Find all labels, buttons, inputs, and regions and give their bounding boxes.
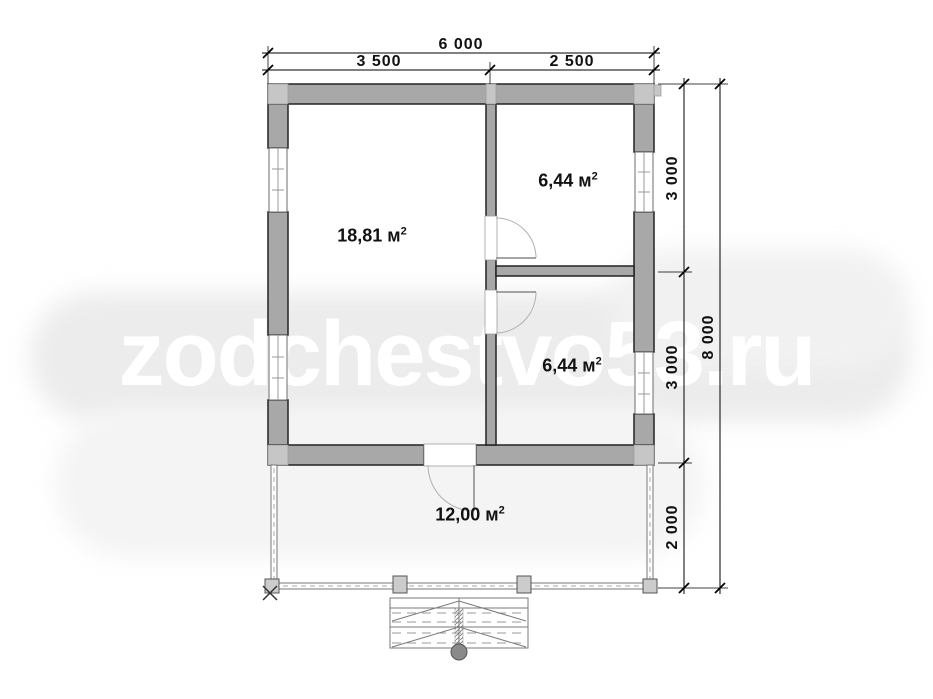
interior-vertical-wall-segment bbox=[486, 333, 496, 445]
room-area-sup: 2 bbox=[499, 505, 505, 517]
junction-block bbox=[486, 84, 496, 104]
room-area-value: 6,44 bbox=[538, 171, 573, 191]
dimension-label-top-total: 6 000 bbox=[438, 36, 483, 54]
window-left-lower bbox=[269, 335, 287, 400]
terrace-post bbox=[393, 576, 407, 593]
bottom-wall-right-segment bbox=[476, 445, 654, 465]
floor-plan-page: zodchestvo53.ru bbox=[0, 0, 933, 699]
terrace-post bbox=[643, 579, 657, 593]
room-area-unit: м bbox=[578, 171, 591, 191]
corner-block bbox=[268, 84, 288, 104]
room-area-sup: 2 bbox=[592, 171, 598, 183]
interior-walls bbox=[486, 104, 634, 445]
doors bbox=[424, 216, 536, 511]
room-label-bottom-right: 6,44м2 bbox=[542, 356, 602, 377]
right-wall-segment bbox=[634, 104, 654, 152]
top-wall bbox=[268, 84, 654, 104]
left-wall-segment bbox=[268, 400, 288, 445]
terrace-post bbox=[517, 576, 531, 593]
window-right-lower bbox=[635, 352, 653, 414]
floor-plan-drawing bbox=[0, 0, 933, 699]
left-wall-segment bbox=[268, 212, 288, 335]
terrace-railings bbox=[263, 465, 657, 600]
room-area-unit: м bbox=[582, 356, 595, 376]
door-top-right-room bbox=[485, 216, 536, 260]
interior-vertical-wall-segment bbox=[486, 259, 496, 291]
corner-block bbox=[634, 445, 654, 465]
window-right-upper bbox=[635, 152, 653, 212]
room-area-unit: м bbox=[387, 226, 400, 246]
stair-post-circle bbox=[451, 644, 467, 660]
interior-vertical-wall-segment bbox=[486, 104, 496, 217]
room-area-value: 18,81 bbox=[337, 226, 382, 246]
dimension-label-top-right: 2 500 bbox=[549, 53, 594, 71]
right-wall-segment bbox=[634, 212, 654, 352]
interior-horizontal-wall bbox=[496, 266, 634, 276]
room-area-unit: м bbox=[485, 505, 498, 525]
room-label-terrace: 12,00м2 bbox=[435, 505, 505, 526]
corner-block bbox=[634, 84, 654, 104]
window-left-upper bbox=[269, 148, 287, 212]
room-area-sup: 2 bbox=[401, 226, 407, 238]
dimension-label-right-total: 8 000 bbox=[700, 314, 718, 359]
dimension-label-right-lower: 2 000 bbox=[664, 504, 682, 549]
corner-block bbox=[268, 445, 288, 465]
stair-center-hatch bbox=[455, 608, 463, 648]
dimension-label-top-left: 3 500 bbox=[356, 53, 401, 71]
room-area-sup: 2 bbox=[596, 356, 602, 368]
right-wall-segment bbox=[634, 414, 654, 445]
door-terrace-entrance bbox=[424, 444, 476, 511]
room-label-top-right: 6,44м2 bbox=[538, 171, 598, 192]
stairs bbox=[390, 598, 528, 660]
dimension-label-right-middle: 3 000 bbox=[664, 344, 682, 389]
bottom-wall-left-segment bbox=[268, 445, 424, 465]
door-bottom-right-room bbox=[485, 290, 536, 334]
room-area-value: 12,00 bbox=[435, 505, 480, 525]
room-label-living: 18,81м2 bbox=[337, 226, 407, 247]
dimension-label-right-upper: 3 000 bbox=[664, 155, 682, 200]
corner-tab bbox=[654, 85, 661, 96]
room-area-value: 6,44 bbox=[542, 356, 577, 376]
left-wall-segment bbox=[268, 104, 288, 148]
